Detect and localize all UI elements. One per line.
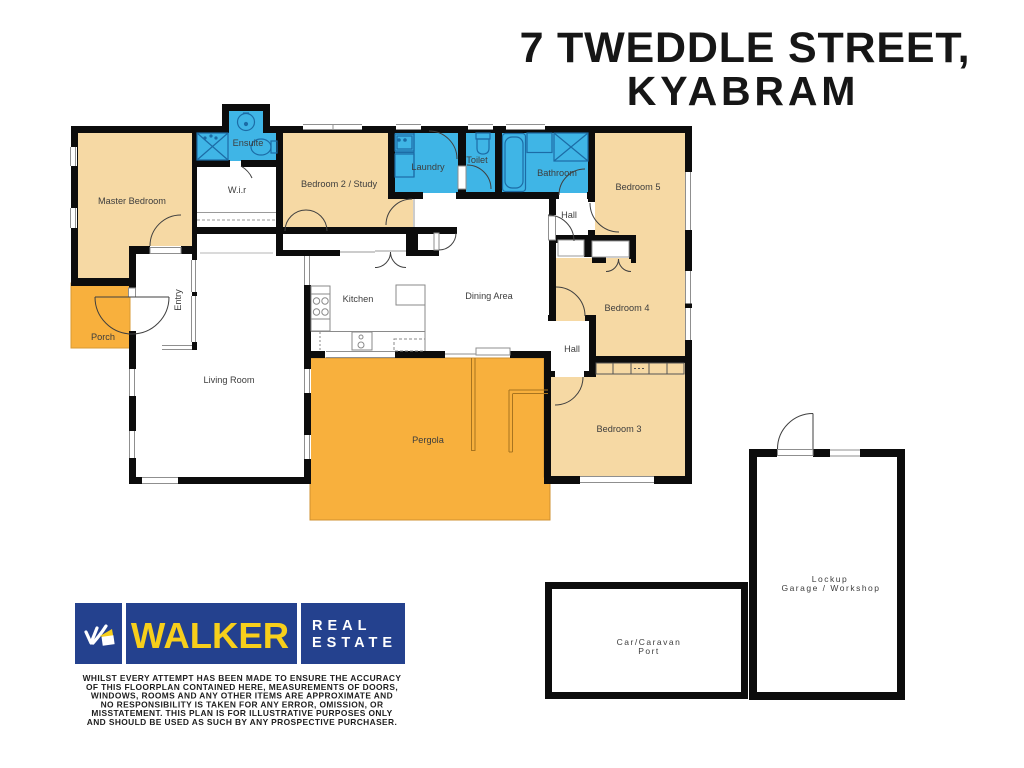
svg-text:Bedroom 5: Bedroom 5 [616, 182, 661, 192]
svg-text:Bedroom 2 / Study: Bedroom 2 / Study [301, 179, 377, 189]
svg-text:Ensuite: Ensuite [233, 138, 264, 148]
svg-text:W.i.r: W.i.r [228, 185, 246, 195]
svg-text:Bedroom 4: Bedroom 4 [605, 303, 650, 313]
svg-text:Port: Port [638, 646, 660, 656]
svg-text:Entry: Entry [173, 289, 183, 311]
svg-text:Kitchen: Kitchen [343, 294, 374, 304]
svg-text:Garage / Workshop: Garage / Workshop [781, 583, 880, 593]
svg-text:Porch: Porch [91, 332, 115, 342]
svg-text:Hall: Hall [564, 344, 580, 354]
svg-text:Dining Area: Dining Area [465, 291, 513, 301]
svg-text:Bathroom: Bathroom [537, 168, 577, 178]
svg-text:Hall: Hall [561, 210, 577, 220]
svg-text:AND SHOULD BE USED AS SUCH BY: AND SHOULD BE USED AS SUCH BY ANY PROSPE… [87, 717, 397, 727]
svg-text:Living Room: Living Room [203, 375, 254, 385]
svg-text:KYABRAM: KYABRAM [627, 68, 859, 114]
svg-text:ESTATE: ESTATE [312, 635, 397, 651]
svg-text:7 TWEDDLE STREET,: 7 TWEDDLE STREET, [520, 24, 971, 72]
svg-text:REAL: REAL [312, 618, 371, 634]
svg-text:Toilet: Toilet [466, 155, 488, 165]
svg-text:Bedroom 3: Bedroom 3 [597, 424, 642, 434]
svg-text:Laundry: Laundry [411, 162, 445, 172]
svg-text:Master Bedroom: Master Bedroom [98, 196, 166, 206]
svg-text:Pergola: Pergola [412, 435, 445, 445]
svg-text:WALKER: WALKER [131, 615, 289, 656]
